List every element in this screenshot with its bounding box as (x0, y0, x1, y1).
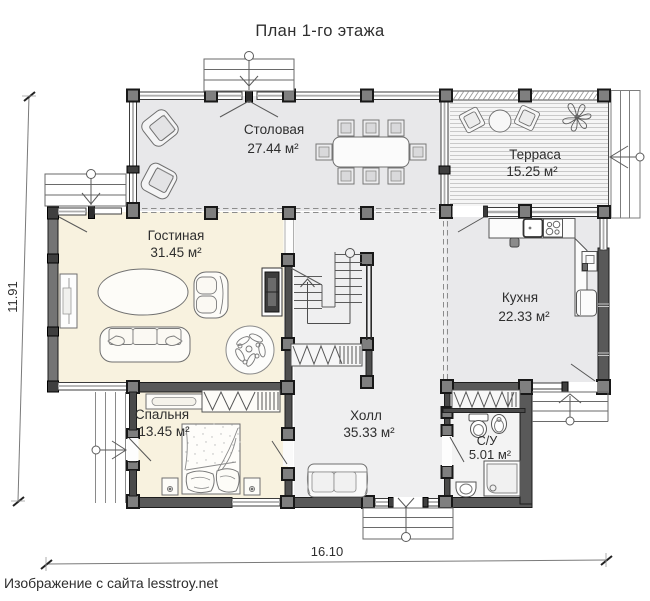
svg-text:22.33 м²: 22.33 м² (498, 309, 550, 324)
svg-text:Спальня: Спальня (135, 407, 189, 422)
svg-text:31.45 м²: 31.45 м² (150, 245, 202, 260)
svg-text:С/У: С/У (477, 434, 498, 448)
svg-text:Столовая: Столовая (244, 122, 304, 137)
svg-text:35.33 м²: 35.33 м² (343, 425, 395, 440)
svg-text:План 1-го этажа: План 1-го этажа (255, 22, 385, 40)
svg-text:Изображение с сайта lesstroy.n: Изображение с сайта lesstroy.net (4, 575, 218, 591)
svg-text:Терраса: Терраса (509, 147, 561, 162)
svg-text:5.01 м²: 5.01 м² (469, 447, 512, 462)
svg-text:Холл: Холл (350, 408, 382, 423)
svg-text:13.45 м²: 13.45 м² (138, 424, 190, 439)
svg-text:27.44 м²: 27.44 м² (247, 141, 299, 156)
svg-text:15.25 м²: 15.25 м² (506, 164, 558, 179)
svg-text:11.91: 11.91 (5, 281, 20, 313)
svg-text:Гостиная: Гостиная (148, 228, 205, 243)
svg-text:Кухня: Кухня (502, 290, 538, 305)
svg-text:16.10: 16.10 (311, 544, 344, 559)
